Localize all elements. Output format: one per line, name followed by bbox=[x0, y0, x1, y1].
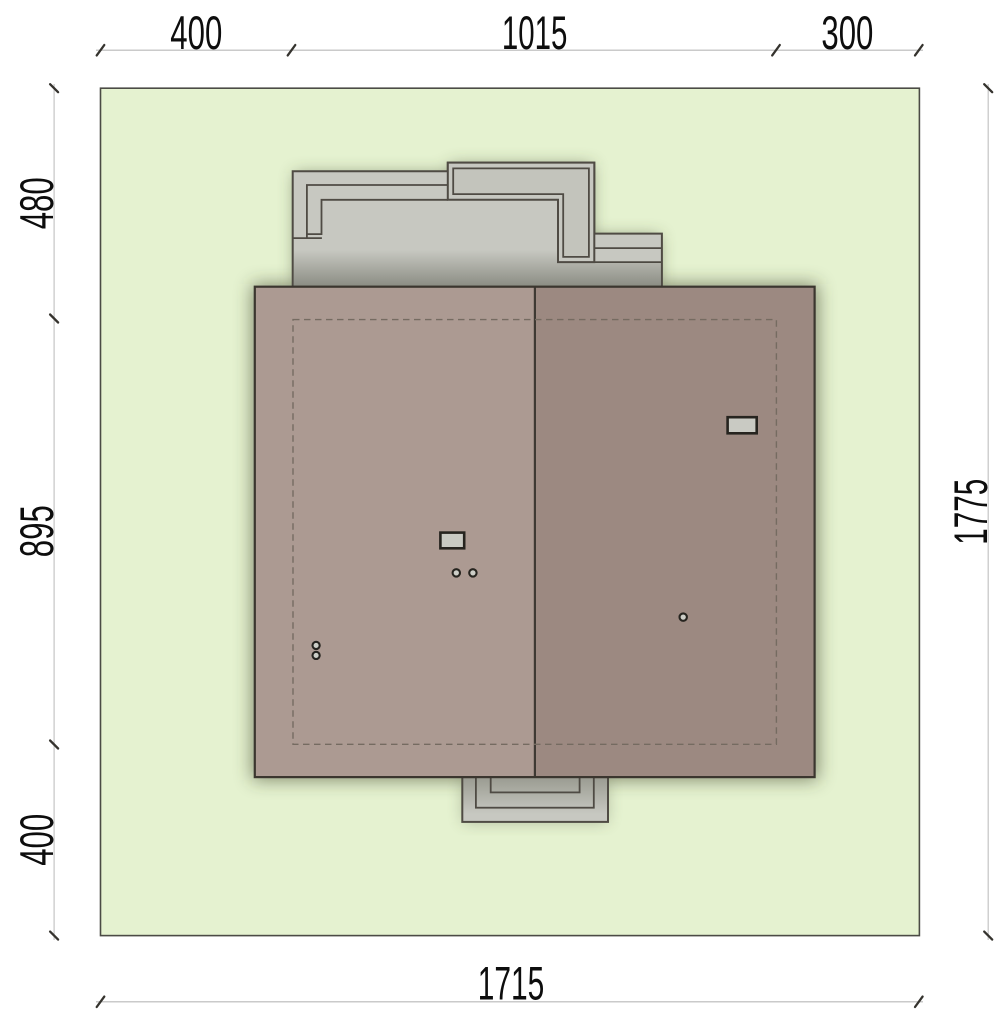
svg-text:400: 400 bbox=[170, 6, 222, 59]
svg-text:1015: 1015 bbox=[502, 6, 568, 59]
svg-text:1775: 1775 bbox=[944, 479, 997, 545]
svg-text:400: 400 bbox=[10, 814, 63, 866]
svg-text:480: 480 bbox=[10, 177, 63, 229]
svg-text:300: 300 bbox=[821, 6, 873, 59]
svg-text:1715: 1715 bbox=[478, 957, 545, 1010]
svg-text:895: 895 bbox=[10, 505, 63, 557]
